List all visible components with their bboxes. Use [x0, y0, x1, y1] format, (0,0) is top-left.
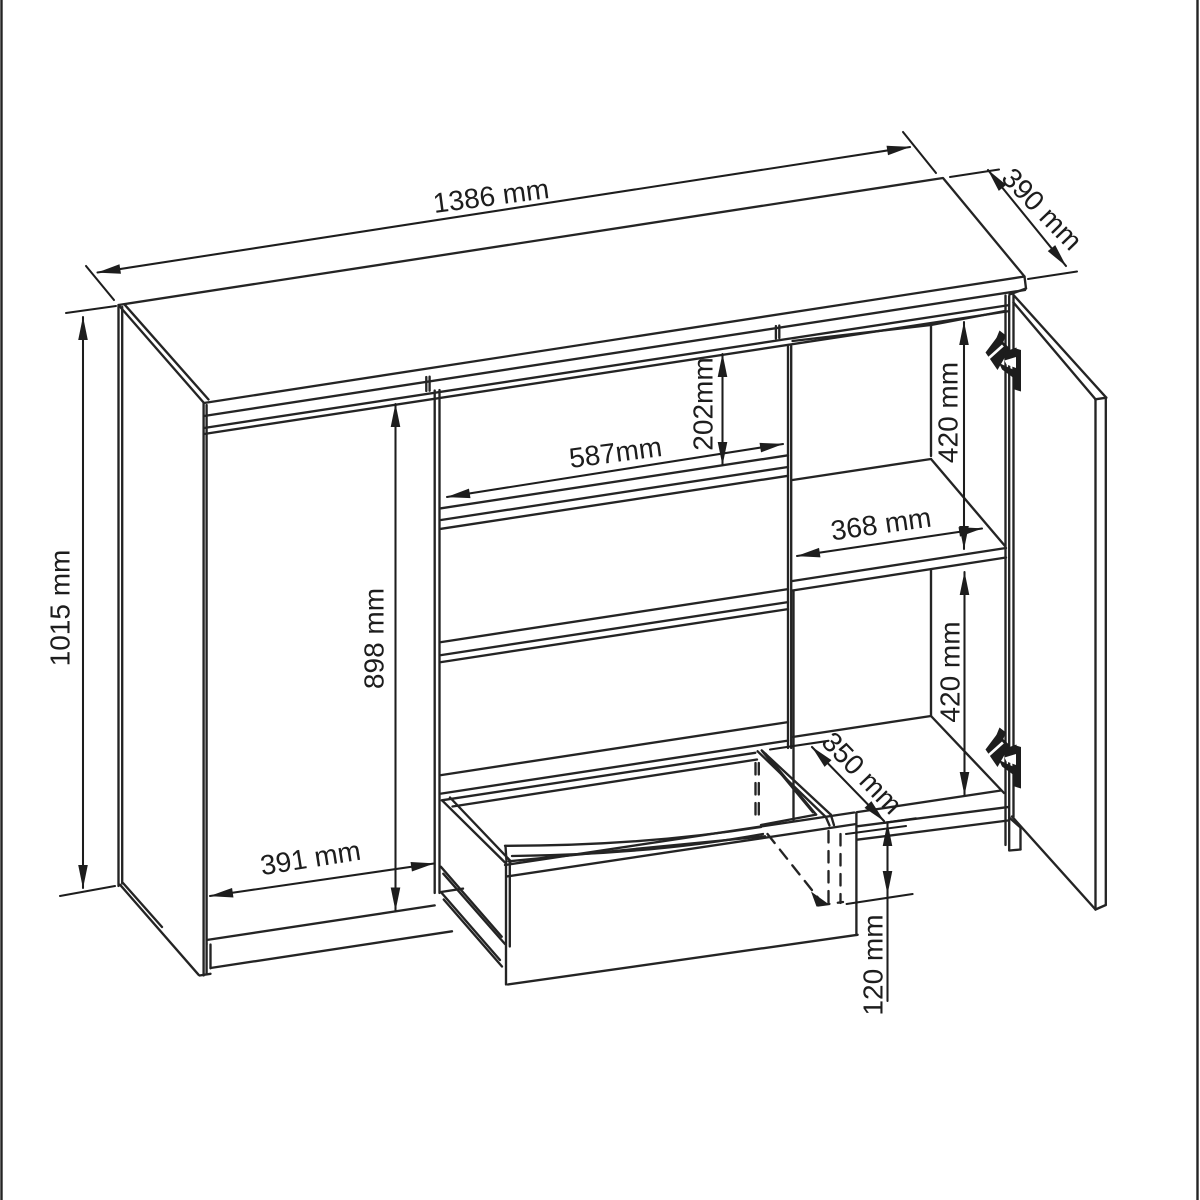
svg-text:420 mm: 420 mm [935, 621, 966, 722]
svg-text:350 mm: 350 mm [816, 726, 909, 820]
svg-text:202mm: 202mm [688, 357, 719, 450]
svg-text:368 mm: 368 mm [829, 502, 933, 547]
svg-text:587mm: 587mm [567, 431, 664, 474]
svg-text:898 mm: 898 mm [359, 588, 390, 689]
svg-text:120 mm: 120 mm [858, 914, 889, 1015]
svg-text:1015 mm: 1015 mm [45, 550, 76, 667]
svg-text:420 mm: 420 mm [933, 362, 964, 463]
svg-text:390 mm: 390 mm [996, 162, 1089, 256]
svg-text:391 mm: 391 mm [258, 835, 363, 881]
